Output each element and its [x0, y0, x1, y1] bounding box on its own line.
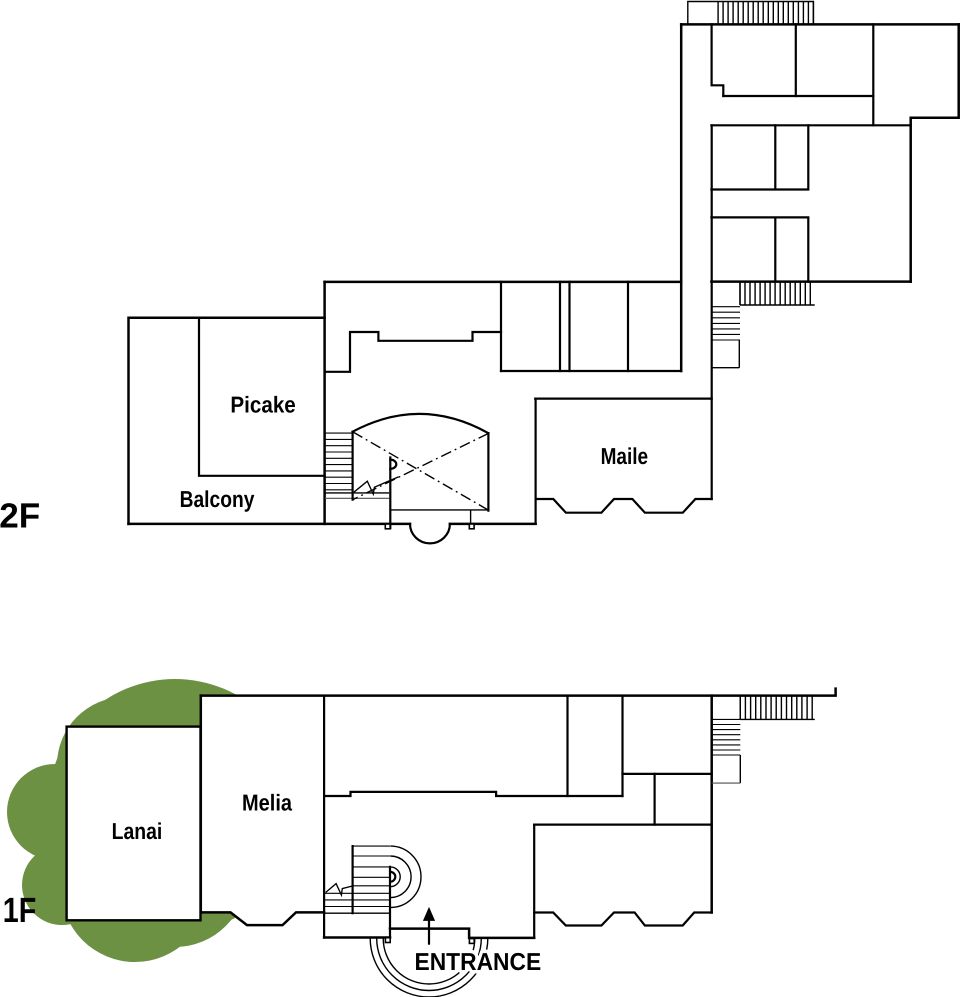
svg-text:Picake: Picake: [230, 392, 295, 418]
svg-text:1F: 1F: [3, 891, 37, 930]
svg-text:2F: 2F: [0, 496, 40, 535]
svg-text:Maile: Maile: [601, 443, 649, 469]
svg-text:Lanai: Lanai: [112, 818, 163, 844]
svg-text:ENTRANCE: ENTRANCE: [415, 949, 542, 976]
svg-text:Balcony: Balcony: [180, 486, 255, 512]
svg-text:Melia: Melia: [242, 790, 292, 816]
